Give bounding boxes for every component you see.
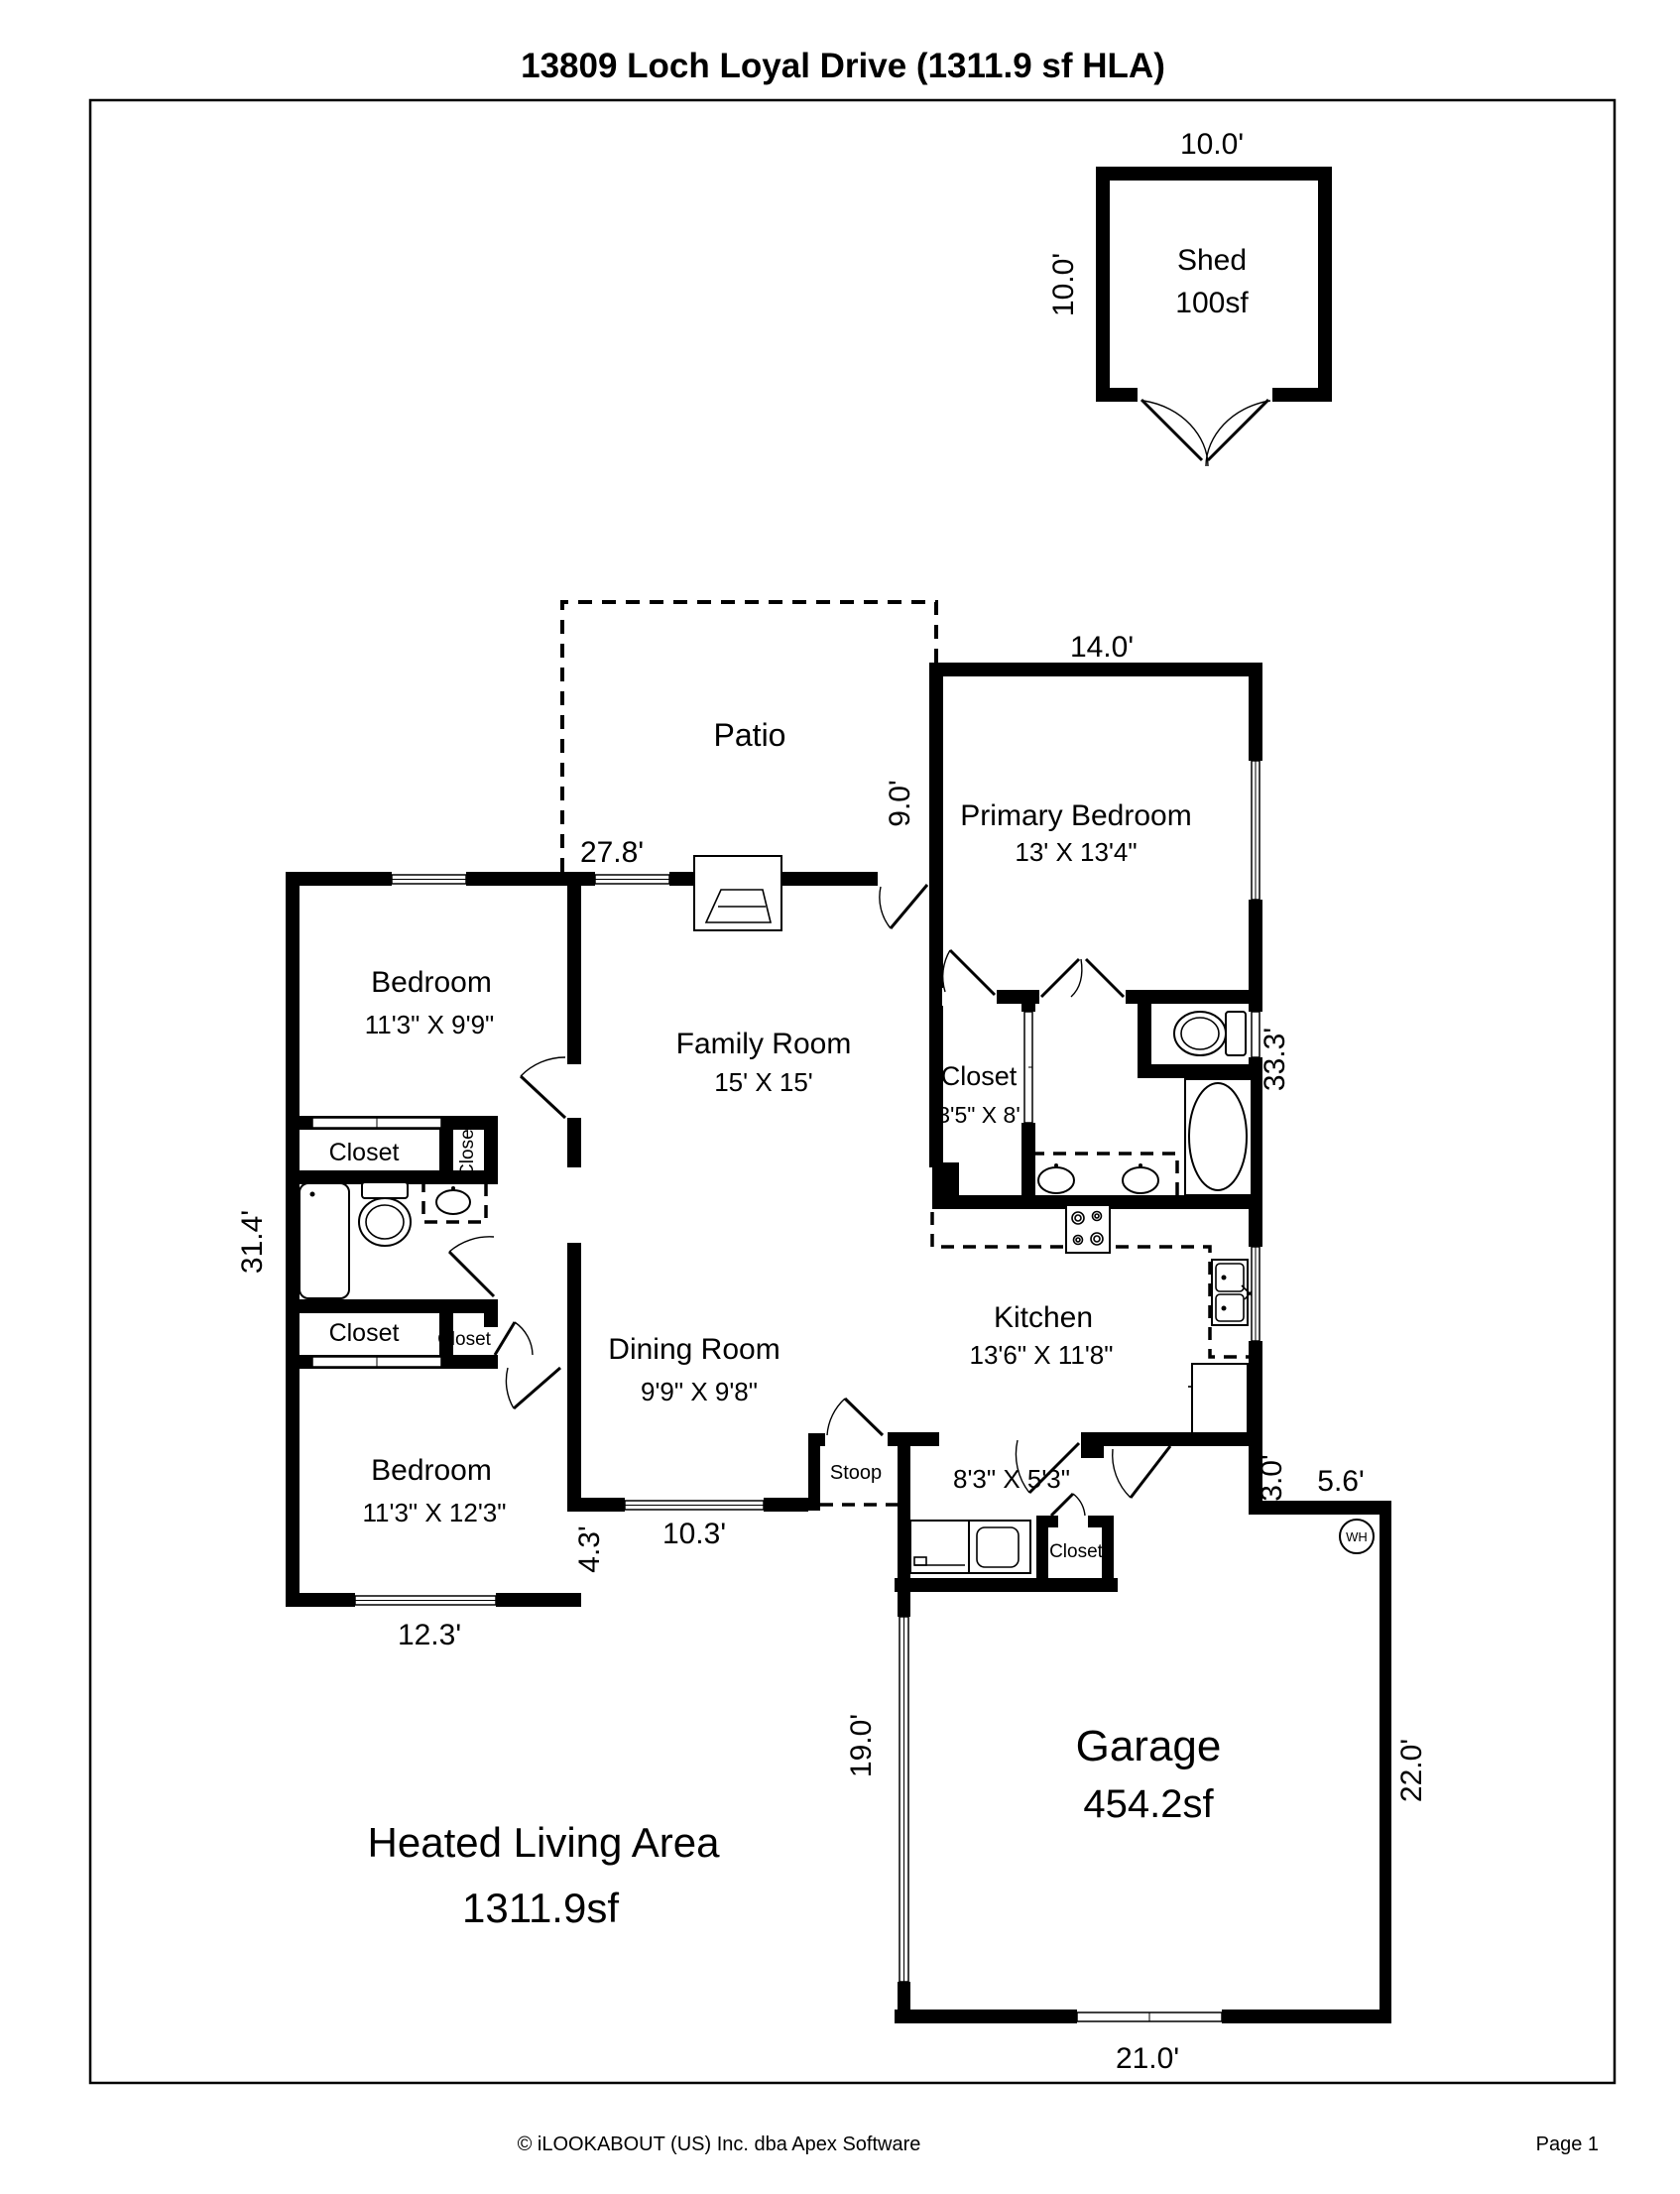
garage-area: 454.2sf <box>1083 1782 1214 1826</box>
floor-plan-page: 13809 Loch Loyal Drive (1311.9 sf HLA) 1… <box>0 0 1680 2194</box>
shed-height-dim: 10.0' <box>1047 253 1080 316</box>
family-room-size: 15' X 15' <box>714 1067 813 1097</box>
bedroom-top: Bedroom 11'3" X 9'9" <box>365 966 495 1039</box>
footer-page-number: Page 1 <box>1536 2133 1599 2155</box>
footer-copyright: © iLOOKABOUT (US) Inc. dba Apex Software <box>518 2133 921 2155</box>
patio: Patio <box>562 602 936 872</box>
dining-room-label: Dining Room <box>608 1333 780 1366</box>
hla-line2: 1311.9sf <box>462 1885 619 1931</box>
water-heater: WH <box>1340 1520 1374 1553</box>
dim-primary-width: 14.0' <box>1070 631 1134 664</box>
bedroom-bottom-label: Bedroom <box>371 1454 492 1487</box>
primary-bedroom: Primary Bedroom 13' X 13'4" <box>960 799 1191 867</box>
dim-patio-depth: 9.0' <box>884 780 916 826</box>
heated-living-area: Heated Living Area 1311.9sf <box>368 1819 721 1931</box>
dim-garage-step: 5.6' <box>1317 1465 1364 1498</box>
fireplace <box>694 856 781 930</box>
dim-dining-width: 10.3' <box>662 1518 726 1550</box>
washer-dryer <box>910 1521 1030 1573</box>
dim-left-side: 31.4' <box>236 1210 269 1274</box>
dim-bedroom-bottom-width: 12.3' <box>398 1619 461 1651</box>
floor-plan-drawing: 13809 Loch Loyal Drive (1311.9 sf HLA) 1… <box>0 0 1680 2194</box>
dim-north-wing: 27.8' <box>580 836 644 869</box>
dim-step: 4.3' <box>573 1525 606 1572</box>
dining-room-size: 9'9" X 9'8" <box>641 1377 758 1406</box>
bedroom-bottom: Bedroom 11'3" X 12'3" <box>362 1454 506 1527</box>
closet-row2-label: Closet <box>329 1319 400 1347</box>
family-room: Family Room 15' X 15' <box>676 1028 852 1097</box>
closet-row1-label: Closet <box>329 1139 400 1166</box>
dim-kitchen-step: 3.0' <box>1256 1454 1288 1501</box>
primary-bedroom-label: Primary Bedroom <box>960 799 1191 832</box>
walkin-closet-size: 3'5" X 8' <box>937 1102 1020 1128</box>
dim-right-side: 33.3' <box>1259 1028 1291 1091</box>
dim-garage-right: 22.0' <box>1395 1739 1428 1802</box>
bedroom-bottom-size: 11'3" X 12'3" <box>362 1498 506 1527</box>
shed-label: Shed <box>1177 244 1247 277</box>
primary-bedroom-size: 13' X 13'4" <box>1015 837 1137 867</box>
vanity-double <box>1029 1154 1177 1195</box>
hla-line1: Heated Living Area <box>368 1819 721 1866</box>
closet-row2-small-label: Closet <box>437 1329 492 1350</box>
dining-room: Dining Room 9'9" X 9'8" <box>608 1333 780 1406</box>
bathtub-hall <box>300 1183 349 1298</box>
shed-area-label: 100sf <box>1175 287 1249 319</box>
footer: © iLOOKABOUT (US) Inc. dba Apex Software… <box>518 2133 1599 2155</box>
garage-label: Garage <box>1076 1722 1222 1770</box>
garage: Garage 454.2sf <box>1076 1722 1222 1826</box>
garage-closet-label: Closet <box>1049 1541 1104 1562</box>
kitchen-sink <box>1212 1260 1252 1325</box>
page-title: 13809 Loch Loyal Drive (1311.9 sf HLA) <box>521 47 1165 85</box>
stoop-label: Stoop <box>830 1462 882 1484</box>
water-heater-label: WH <box>1346 1529 1368 1544</box>
refrigerator <box>1188 1364 1248 1433</box>
kitchen: Kitchen 13'6" X 11'8" <box>969 1301 1113 1370</box>
toilet-hall <box>359 1182 411 1246</box>
shed: 10.0' 10.0' Shed 100sf <box>1047 128 1332 466</box>
dim-garage-width: 21.0' <box>1116 2042 1179 2075</box>
kitchen-label: Kitchen <box>994 1301 1093 1334</box>
sink-hall <box>423 1180 486 1222</box>
laundry-size: 8'3" X 5'3" <box>953 1464 1070 1494</box>
family-room-label: Family Room <box>676 1028 852 1060</box>
kitchen-size: 13'6" X 11'8" <box>969 1340 1113 1370</box>
stove <box>1066 1205 1110 1253</box>
walkin-closet-label: Closet <box>941 1061 1018 1091</box>
bedroom-top-label: Bedroom <box>371 966 492 999</box>
dim-garage-left: 19.0' <box>845 1714 878 1777</box>
bathtub-primary <box>1185 1079 1252 1195</box>
walkin-closet: Closet 3'5" X 8' <box>937 1061 1020 1128</box>
shed-width-dim: 10.0' <box>1180 128 1244 161</box>
toilet-primary <box>1174 1012 1246 1055</box>
bedroom-top-size: 11'3" X 9'9" <box>365 1010 495 1039</box>
closet-row1-small-label: Closet <box>457 1123 478 1177</box>
patio-label: Patio <box>714 717 786 753</box>
